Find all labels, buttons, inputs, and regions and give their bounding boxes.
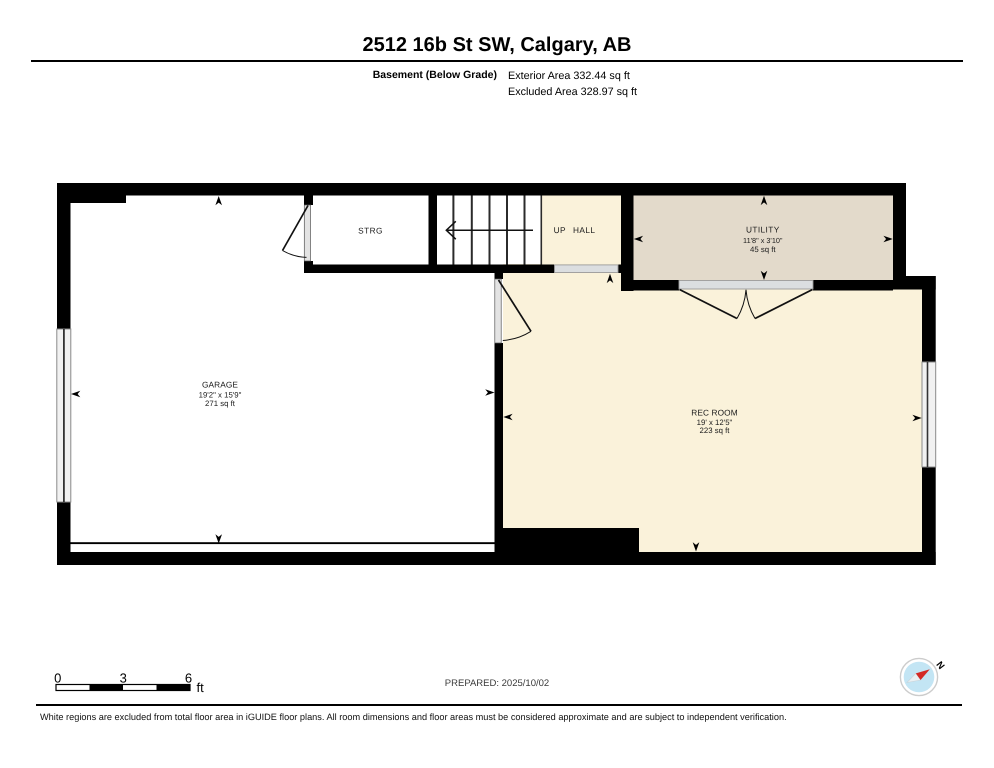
svg-text:223 sq ft: 223 sq ft — [700, 426, 731, 435]
svg-text:HALL: HALL — [573, 225, 595, 235]
svg-text:GARAGE: GARAGE — [202, 380, 238, 390]
svg-text:STRG: STRG — [358, 226, 383, 236]
svg-text:271 sq ft: 271 sq ft — [205, 399, 236, 408]
svg-text:45 sq ft: 45 sq ft — [750, 245, 776, 254]
svg-text:19'2" x 15'9": 19'2" x 15'9" — [199, 390, 242, 399]
svg-text:REC ROOM: REC ROOM — [691, 408, 737, 418]
svg-text:UTILITY: UTILITY — [746, 225, 780, 235]
svg-text:UP: UP — [554, 225, 566, 235]
svg-text:11'8" x 3'10": 11'8" x 3'10" — [743, 236, 783, 245]
